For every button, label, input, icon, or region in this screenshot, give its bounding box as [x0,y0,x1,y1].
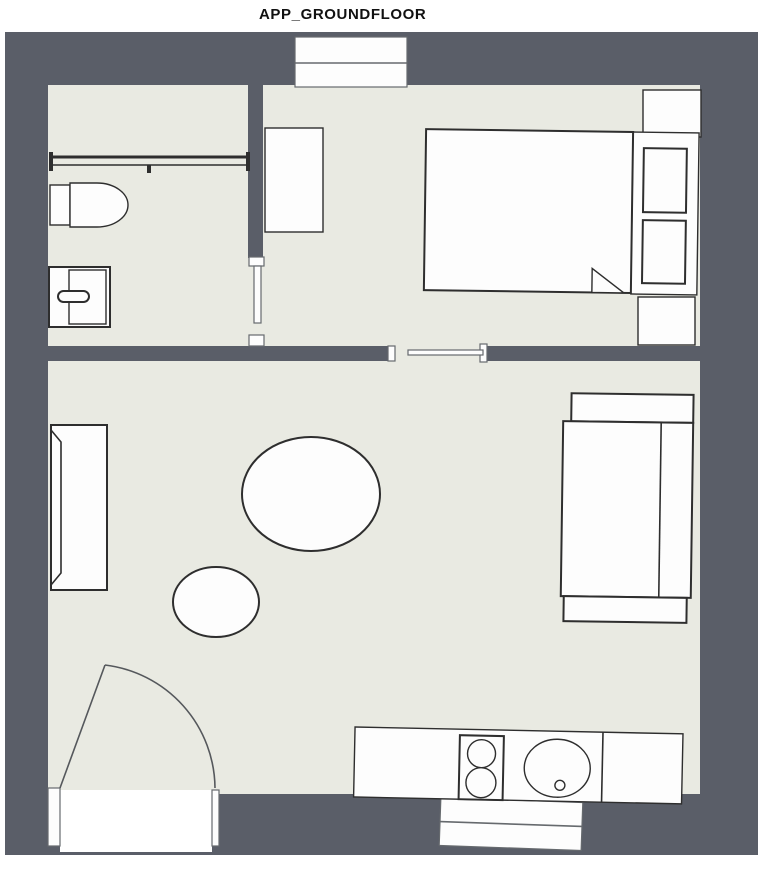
wardrobe-sideboard [51,425,107,590]
kitchen-counter [354,727,683,804]
window-bottom [439,798,583,851]
toilet [50,183,128,227]
sink-handle [58,291,89,302]
burner-top [467,739,496,768]
window-top [295,37,407,87]
sofa-armrest-bottom [563,596,686,623]
pillow-bottom [642,220,686,284]
floor-plan [0,0,765,890]
sofa-armrest-top [571,393,693,423]
sink-cabinet [49,267,110,327]
sofa [560,393,693,623]
dining-table [242,437,380,551]
kitchen-sink [524,739,591,798]
entrance-opening [60,790,212,852]
sink-drain [555,780,565,790]
burner-bottom [466,767,497,798]
middle-wall-left [48,346,388,361]
toilet-bowl [70,183,128,227]
nightstand-bottom [638,297,695,345]
bathroom-door-leaf [254,266,261,323]
toilet-tank [50,185,70,225]
bed-mattress [424,129,633,293]
entrance-frame-left [48,788,60,846]
sliding-door-leaf [408,350,483,355]
desk [265,128,323,232]
pillow-top [643,148,687,213]
sofa-seat [561,421,693,598]
shower-screen-tick [147,165,151,173]
stove [459,735,504,800]
stool [173,567,259,637]
kitchen [354,727,683,804]
bed [424,129,699,295]
bathroom-bedroom-wall [248,85,263,258]
middle-wall-right [486,346,700,361]
nightstand-top [643,90,701,137]
entrance-frame-right [212,790,219,846]
